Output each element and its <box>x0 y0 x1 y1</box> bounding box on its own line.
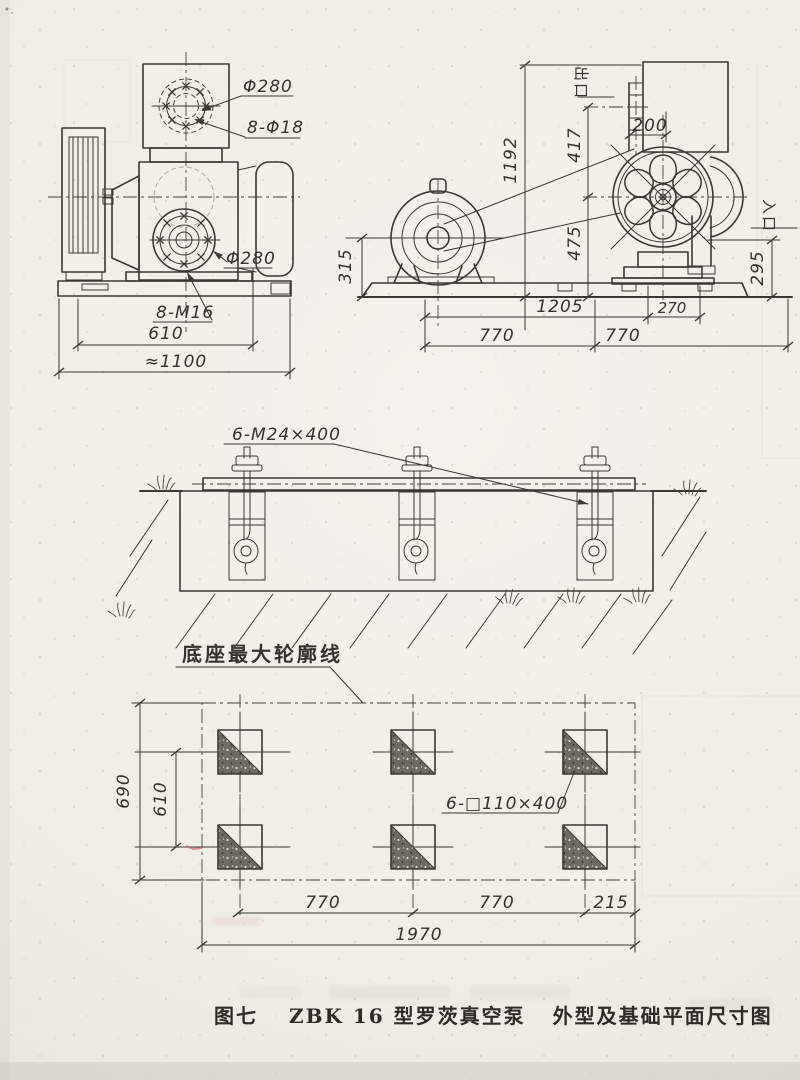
dim-610-plan: 610 <box>151 781 171 816</box>
outline-label-text: 底座最大轮廓线 <box>182 642 343 666</box>
pocket-spec-label: 6-□110×400 <box>446 794 568 814</box>
dim-770-plan-2: 770 <box>479 893 514 913</box>
dim-770-left: 770 <box>479 326 514 346</box>
dim-215: 215 <box>593 893 628 913</box>
top-bolt-holes-label: 8-Φ18 <box>247 118 304 138</box>
dim-315: 315 <box>336 248 356 283</box>
anchor-bolt-spec-label: 6-M24×400 <box>232 425 341 445</box>
dim-200: 200 <box>632 116 667 136</box>
outlet-label: 出口 <box>572 66 590 100</box>
paper-texture <box>0 0 800 1080</box>
scanned-drawing-page: Φ280 8-Φ18 Φ280 8-M16 610 ≈1100 出口 <box>0 0 800 1080</box>
front-bolts-label: 8-M16 <box>156 303 214 323</box>
dim-690: 690 <box>114 773 134 808</box>
dim-770-plan-1: 770 <box>305 893 340 913</box>
dim-295: 295 <box>748 250 768 285</box>
caption-subtitle: 外型及基础平面尺寸图 <box>553 1004 773 1028</box>
top-flange-dia-label: Φ280 <box>243 77 293 97</box>
figure-caption: 图七 ZBK 16 型罗茨真空泵 外型及基础平面尺寸图 <box>214 1004 773 1028</box>
dim-475: 475 <box>565 225 585 260</box>
technical-drawing: Φ280 8-Φ18 Φ280 8-M16 610 ≈1100 出口 <box>0 0 800 1080</box>
caption-model: ZBK 16 型罗茨真空泵 <box>289 1004 526 1028</box>
dim-1100: ≈1100 <box>145 352 208 372</box>
dim-1205: 1205 <box>536 297 583 317</box>
caption-figure-no: 图七 <box>214 1004 258 1028</box>
dim-610: 610 <box>148 324 183 344</box>
dim-270: 270 <box>658 299 687 317</box>
dim-1970: 1970 <box>395 925 442 945</box>
front-flange-dia-label: Φ280 <box>226 249 276 269</box>
dim-417: 417 <box>565 127 585 162</box>
dim-1192: 1192 <box>501 136 521 183</box>
dim-770-right: 770 <box>605 326 640 346</box>
